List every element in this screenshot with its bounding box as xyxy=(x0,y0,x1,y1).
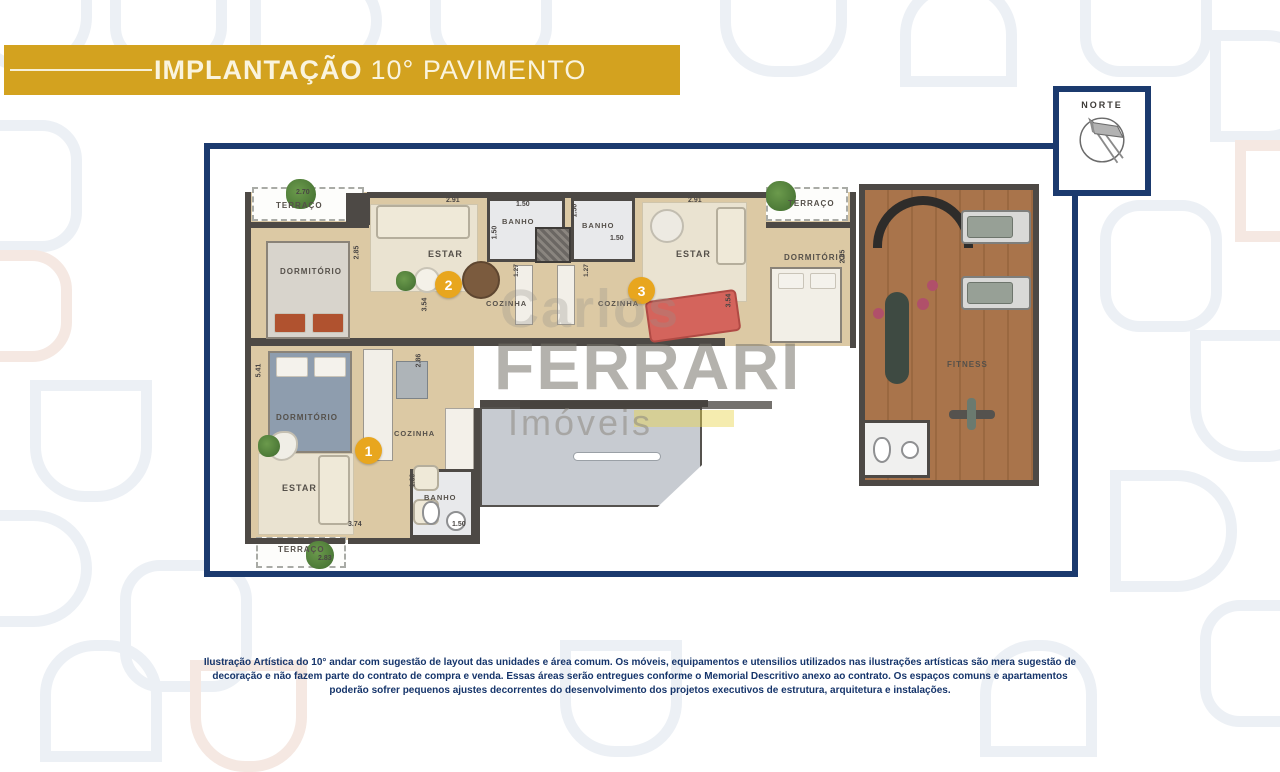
toilet-icon xyxy=(422,501,440,525)
room-label-dormitorio: DORMITÓRIO xyxy=(276,413,338,422)
room-label-banho: BANHO xyxy=(582,221,615,230)
kitchen-table-unit1 xyxy=(396,361,428,399)
background-pattern-shape xyxy=(0,120,82,252)
wall xyxy=(850,192,856,348)
dim-label: 2.91 xyxy=(446,197,460,204)
dim-label: 2.83 xyxy=(318,555,332,562)
background-pattern-shape xyxy=(0,250,72,362)
background-pattern-shape xyxy=(1200,600,1280,727)
dumbbell-icon xyxy=(927,280,938,291)
page-title-bold: IMPLANTAÇÃO xyxy=(154,55,362,85)
room-label-terraco: TERRAÇO xyxy=(276,201,323,210)
title-banner: IMPLANTAÇÃO10° PAVIMENTO xyxy=(4,45,680,95)
treadmill-icon xyxy=(961,276,1031,310)
room-label-estar: ESTAR xyxy=(676,249,711,259)
treadmill-icon xyxy=(961,210,1031,244)
page-title-light: 10° PAVIMENTO xyxy=(370,55,586,85)
exercise-bike-icon xyxy=(967,398,976,430)
dim-label: 3.54 xyxy=(421,298,428,312)
background-pattern-shape xyxy=(0,510,92,627)
background-pattern-shape xyxy=(1080,0,1212,77)
wall xyxy=(766,222,850,228)
dim-label: 1.27 xyxy=(513,264,520,277)
room-label-fitness: FITNESS xyxy=(947,360,988,369)
pillow-icon xyxy=(274,313,306,333)
unit-badge-2: 2 xyxy=(435,271,462,298)
ventilation-shaft xyxy=(535,227,571,263)
sink-icon xyxy=(901,441,919,459)
compass-arrow-icon xyxy=(1070,110,1134,170)
room-label-cozinha: COZINHA xyxy=(486,299,527,308)
armchair-icon xyxy=(716,207,746,265)
background-pattern-shape xyxy=(1190,330,1280,462)
dim-label: 2.86 xyxy=(415,354,422,368)
banner-rule-line xyxy=(10,69,152,71)
toilet-icon xyxy=(873,437,891,463)
pillow-icon xyxy=(276,357,308,377)
floor-plan: FITNESS 2 3 1 2.70 TERRAÇO DORMITÓRIO ES… xyxy=(204,143,1078,577)
dim-label: 2.85 xyxy=(353,246,360,260)
dim-label: 2.70 xyxy=(296,189,310,196)
background-pattern-shape xyxy=(900,0,1017,87)
dim-label: 1.27 xyxy=(583,264,590,277)
unit-badge-1: 1 xyxy=(355,437,382,464)
wall xyxy=(480,400,708,407)
background-pattern-shape xyxy=(40,640,162,762)
plant-icon xyxy=(258,435,280,457)
room-label-dormitorio: DORMITÓRIO xyxy=(280,267,342,276)
dim-label: 1.50 xyxy=(610,235,624,242)
background-pattern-shape xyxy=(1100,200,1222,332)
background-pattern-shape xyxy=(30,380,152,502)
dim-label: 5.41 xyxy=(255,364,262,378)
dim-label: 1.50 xyxy=(571,204,578,218)
bed-icon xyxy=(266,241,350,339)
room-label-banho: BANHO xyxy=(502,217,535,226)
round-table-icon xyxy=(462,261,500,299)
dim-label: 1.50 xyxy=(516,201,530,208)
compass-box: NORTE xyxy=(1053,86,1151,196)
room-label-cozinha: COZINHA xyxy=(598,299,639,308)
wall xyxy=(245,344,251,544)
bed-icon xyxy=(770,267,842,343)
pillow-icon xyxy=(810,273,836,289)
room-label-dormitorio: DORMITÓRIO xyxy=(784,253,846,262)
room-label-estar: ESTAR xyxy=(428,249,463,259)
sofa-icon xyxy=(376,205,470,239)
wall xyxy=(367,192,767,198)
disclaimer-text: Ilustração Artística do 10° andar com su… xyxy=(200,656,1080,698)
common-bathroom xyxy=(862,420,930,478)
kitchen-counter-unit3 xyxy=(557,265,575,325)
pillow-icon xyxy=(314,357,346,377)
plant-icon xyxy=(396,271,416,291)
dim-label: 1.50 xyxy=(452,521,466,528)
compass-label: NORTE xyxy=(1059,100,1145,110)
background-pattern-shape xyxy=(1110,470,1237,592)
room-label-cozinha: COZINHA xyxy=(394,429,435,438)
dim-label: 1.60 xyxy=(409,474,416,488)
room-label-estar: ESTAR xyxy=(282,483,317,493)
page-title: IMPLANTAÇÃO10° PAVIMENTO xyxy=(154,55,586,86)
room-label-banho: BANHO xyxy=(424,493,457,502)
dim-label: 2.85 xyxy=(839,250,846,264)
dumbbell-icon xyxy=(873,308,884,319)
wall xyxy=(348,538,478,544)
background-pattern-shape xyxy=(1210,30,1280,142)
hall-bench xyxy=(573,452,661,461)
wall xyxy=(245,192,251,346)
wall xyxy=(474,408,480,544)
sofa-icon xyxy=(318,455,350,525)
dim-label: 2.91 xyxy=(688,197,702,204)
dim-label: 3.54 xyxy=(725,294,732,308)
gym-bench-icon xyxy=(885,292,909,384)
wall xyxy=(245,538,345,544)
room-label-terraco: TERRAÇO xyxy=(788,199,835,208)
round-table-icon xyxy=(650,209,684,243)
dumbbell-icon xyxy=(917,298,929,310)
dim-label: 3.74 xyxy=(348,521,362,528)
room-label-terraco: TERRAÇO xyxy=(278,545,325,554)
background-pattern-shape xyxy=(1235,140,1280,242)
gym-cable-machine-icon xyxy=(873,196,973,248)
background-pattern-shape xyxy=(720,0,847,77)
pillow-icon xyxy=(312,313,344,333)
pillow-icon xyxy=(778,273,804,289)
dim-label: 1.50 xyxy=(491,226,498,240)
armchair-icon xyxy=(413,465,439,491)
bathroom-unit3 xyxy=(571,198,635,262)
